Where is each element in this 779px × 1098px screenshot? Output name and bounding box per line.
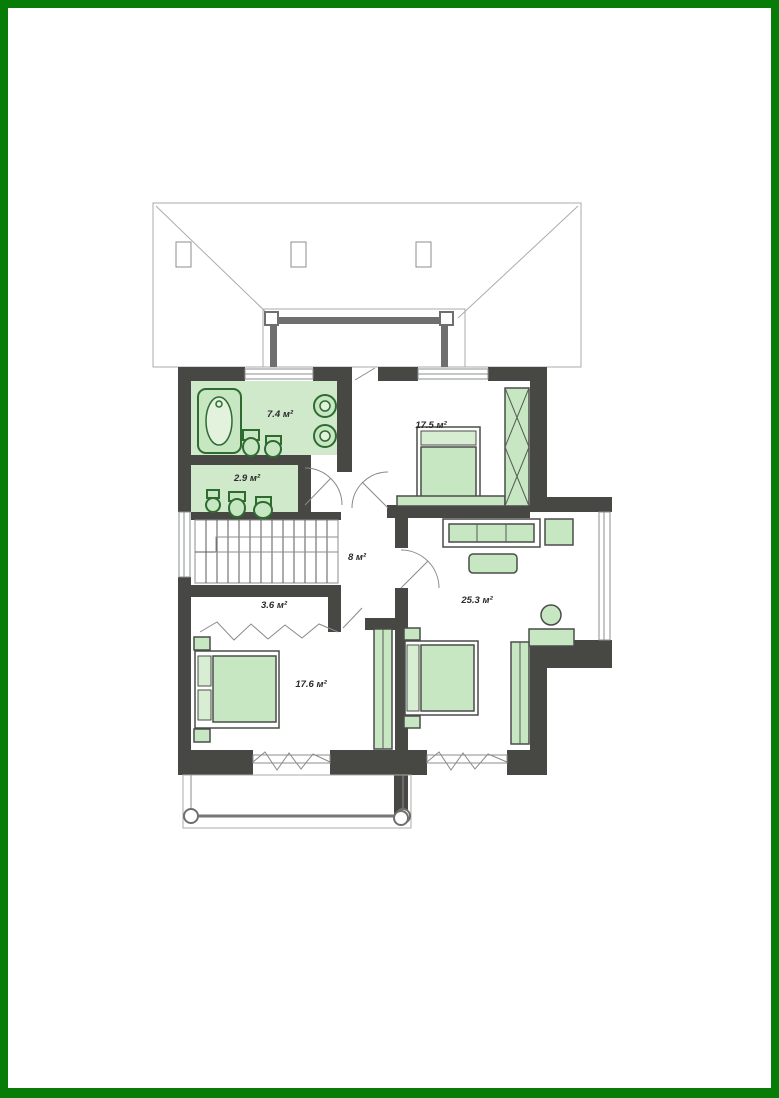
wall	[178, 367, 191, 512]
nightstand	[194, 729, 210, 742]
roof-plan	[153, 203, 581, 367]
bay-window-right	[599, 512, 610, 640]
room-area-label: 3.6 м²	[261, 600, 288, 611]
wall	[530, 640, 547, 775]
wall	[395, 518, 408, 548]
terrace-outline	[183, 775, 411, 828]
bedroom-bottom-left-furniture	[194, 629, 392, 749]
bay-top-wall	[530, 497, 612, 512]
window-top-right	[418, 369, 488, 379]
chair	[541, 605, 561, 625]
wall	[378, 367, 418, 381]
nightstand	[404, 628, 420, 640]
desk	[529, 629, 574, 646]
dresser-bench	[397, 496, 505, 506]
wall	[178, 750, 253, 775]
window-left	[179, 512, 190, 577]
roof-hip-right-line	[458, 206, 578, 318]
washbasin	[254, 497, 272, 518]
bidet	[265, 436, 281, 457]
roof-chimney	[416, 242, 431, 267]
bed	[417, 427, 480, 502]
wardrobe	[505, 388, 529, 506]
armchair	[545, 519, 573, 545]
wall	[328, 597, 341, 632]
room-area-label: 2.9 м²	[233, 473, 261, 484]
bedroom-top-right-furniture	[397, 388, 529, 506]
wall	[178, 577, 191, 775]
wardrobe	[511, 642, 529, 744]
wall	[330, 750, 427, 775]
roof-chimney	[291, 242, 306, 267]
wall	[298, 465, 311, 512]
wall	[191, 585, 341, 597]
toilet	[243, 430, 259, 456]
nightstand	[404, 716, 420, 728]
wardrobe	[374, 629, 392, 749]
terrace-post	[394, 811, 408, 825]
lower-terrace	[183, 775, 411, 828]
roof-chimney	[176, 242, 191, 267]
sink	[206, 490, 220, 512]
wall	[337, 367, 352, 472]
bed	[195, 651, 279, 728]
door-leaf	[343, 608, 362, 628]
balcony-post	[265, 312, 278, 325]
floor-plan-drawing: 7.4 м² 2.9 м² 17.5 м² 8 м² 3.6 м² 25.3 м…	[0, 0, 779, 1098]
nightstand	[194, 637, 210, 650]
zigzag-opening	[200, 622, 338, 640]
balcony-post	[440, 312, 453, 325]
bed	[405, 641, 478, 715]
room-area-label: 25.3 м²	[460, 595, 493, 606]
terrace-post	[184, 809, 198, 823]
living-room-furniture	[404, 519, 574, 744]
room-area-label: 7.4 м²	[267, 409, 294, 420]
page: 7.4 м² 2.9 м² 17.5 м² 8 м² 3.6 м² 25.3 м…	[0, 0, 779, 1098]
coffee-table	[469, 554, 517, 573]
door-arc	[401, 550, 439, 588]
door-arc	[352, 472, 388, 508]
bathtub	[198, 389, 241, 453]
room-area-label: 17.6 м²	[295, 679, 327, 690]
toilet	[229, 492, 245, 517]
balcony-rail-top	[270, 317, 448, 324]
staircase	[195, 520, 338, 583]
room-area-label: 17.5 м²	[415, 420, 447, 431]
wall	[365, 618, 408, 630]
door-leaf	[355, 368, 375, 380]
stair-rail	[216, 537, 338, 552]
sofa	[443, 519, 540, 547]
room-area-label: 8 м²	[348, 552, 367, 563]
upper-balcony	[263, 309, 465, 367]
roof-hip-left-line	[156, 206, 272, 318]
roof-outline	[153, 203, 581, 367]
wall	[387, 505, 530, 518]
wall	[530, 367, 547, 512]
window-top-left	[245, 369, 313, 379]
